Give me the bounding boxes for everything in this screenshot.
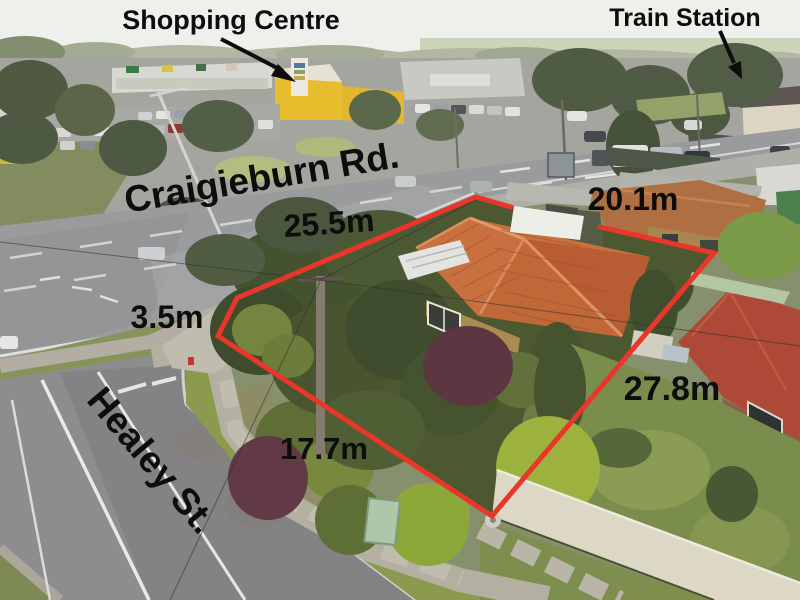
svg-text:Shopping Centre: Shopping Centre	[122, 5, 340, 35]
svg-text:25.5m: 25.5m	[282, 202, 375, 244]
svg-text:3.5m: 3.5m	[131, 299, 204, 335]
svg-text:27.8m: 27.8m	[624, 370, 720, 408]
svg-text:17.7m: 17.7m	[280, 431, 368, 466]
svg-text:20.1m: 20.1m	[588, 181, 679, 217]
svg-text:Train Station: Train Station	[609, 4, 760, 32]
